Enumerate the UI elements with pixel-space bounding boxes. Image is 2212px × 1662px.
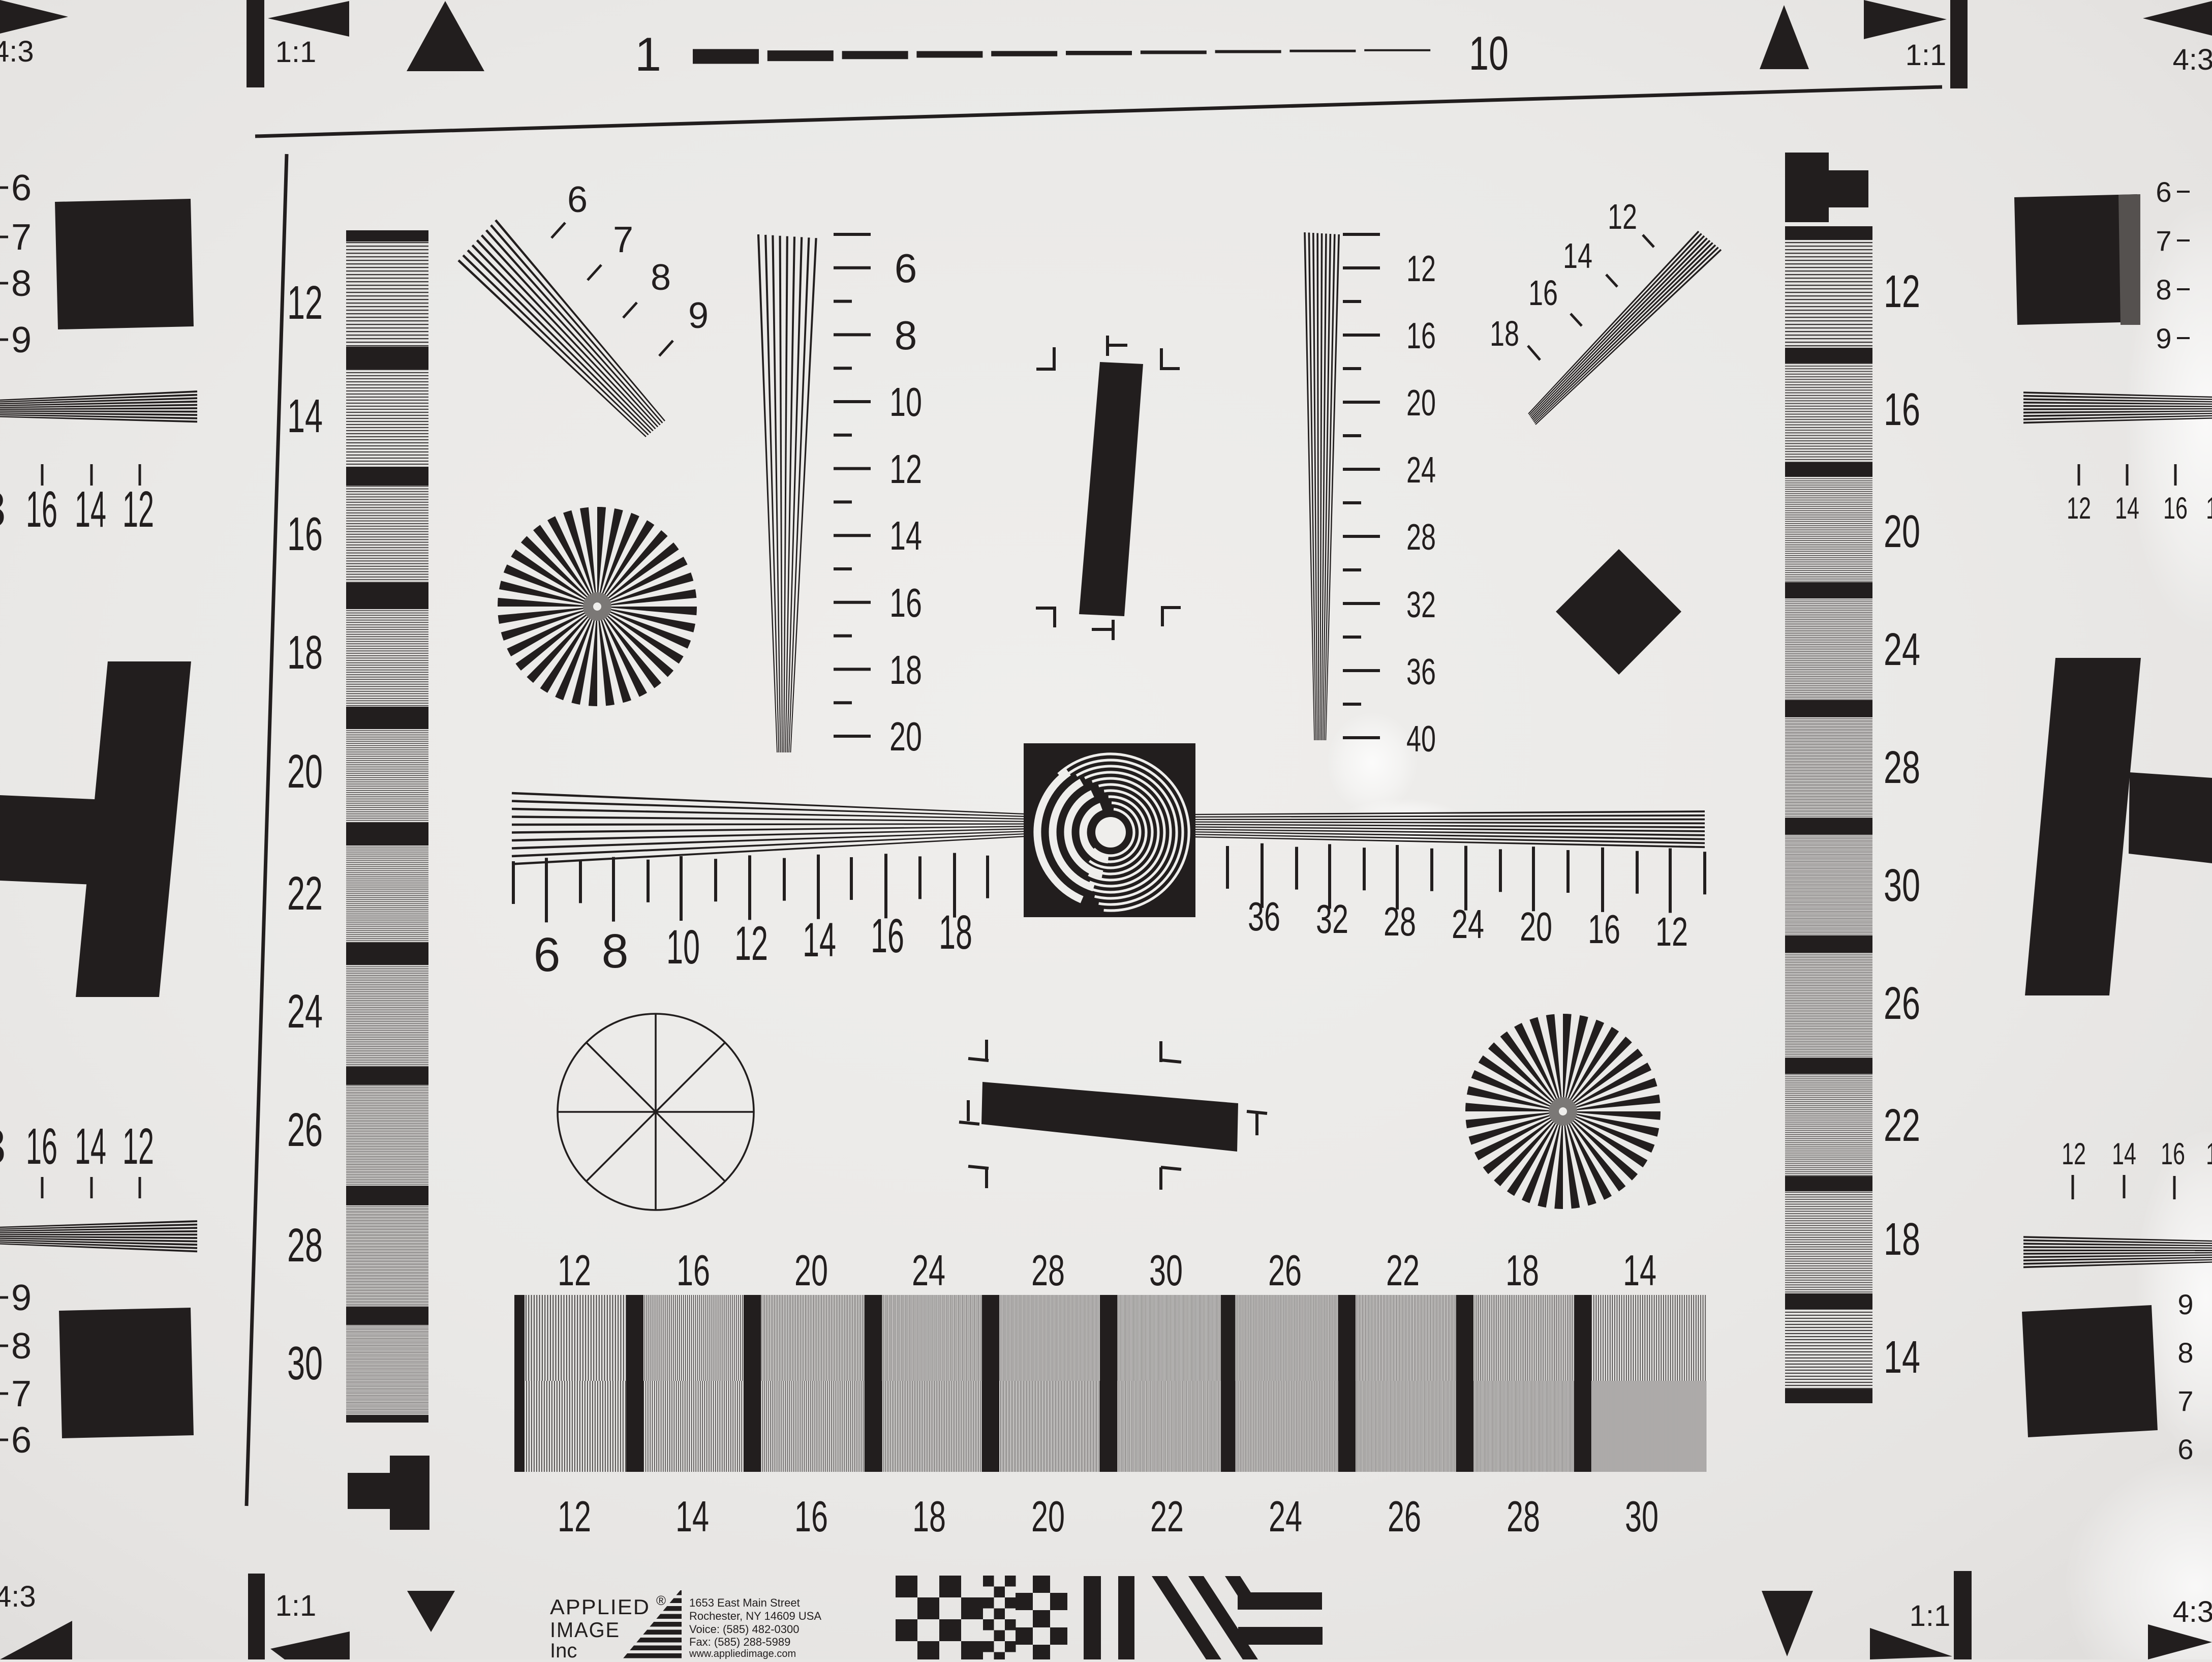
svg-text:32: 32	[1316, 896, 1348, 942]
svg-text:1:1: 1:1	[1906, 39, 1947, 72]
svg-text:6: 6	[895, 246, 917, 291]
svg-text:9: 9	[688, 295, 709, 336]
svg-text:1:1: 1:1	[275, 1589, 317, 1622]
svg-text:®: ®	[656, 1593, 666, 1608]
svg-text:28: 28	[1884, 742, 1920, 793]
svg-text:6: 6	[2156, 176, 2171, 208]
svg-text:26: 26	[1388, 1493, 1421, 1541]
svg-text:8: 8	[2156, 274, 2171, 306]
svg-text:12: 12	[2067, 491, 2091, 525]
svg-text:6: 6	[11, 168, 32, 208]
svg-text:16: 16	[26, 1118, 57, 1175]
svg-text:28: 28	[1031, 1247, 1065, 1295]
svg-text:20: 20	[1520, 904, 1552, 949]
svg-text:6: 6	[2177, 1433, 2193, 1465]
svg-text:26: 26	[287, 1103, 323, 1156]
svg-text:14: 14	[1563, 236, 1592, 276]
svg-text:32: 32	[1406, 585, 1436, 625]
svg-text:9: 9	[2177, 1288, 2193, 1320]
svg-text:16: 16	[2161, 1137, 2185, 1171]
svg-text:10: 10	[666, 920, 700, 974]
svg-text:9: 9	[11, 1278, 32, 1318]
svg-text:7: 7	[11, 1374, 32, 1414]
svg-text:22: 22	[1386, 1247, 1420, 1295]
svg-text:7: 7	[11, 217, 32, 258]
svg-text:14: 14	[889, 513, 922, 558]
svg-text:24: 24	[1269, 1493, 1302, 1541]
svg-text:14: 14	[1623, 1247, 1656, 1295]
svg-text:1653 East Main Street: 1653 East Main Street	[689, 1596, 800, 1609]
svg-text:24: 24	[912, 1247, 945, 1295]
svg-text:12: 12	[734, 917, 768, 971]
svg-text:12: 12	[1655, 909, 1688, 954]
svg-text:28: 28	[1507, 1493, 1540, 1541]
svg-text:16: 16	[1588, 906, 1620, 952]
svg-text:7: 7	[613, 220, 633, 260]
svg-text:Inc: Inc	[550, 1640, 577, 1659]
svg-text:6: 6	[567, 179, 588, 220]
svg-text:16: 16	[677, 1247, 710, 1295]
svg-text:18: 18	[1490, 314, 1519, 353]
svg-text:14: 14	[2112, 1137, 2136, 1171]
svg-text:6: 6	[534, 928, 561, 982]
svg-text:Voice: (585) 482-0300: Voice: (585) 482-0300	[689, 1623, 800, 1636]
svg-text:9: 9	[11, 320, 32, 360]
svg-text:18: 18	[1506, 1247, 1539, 1295]
svg-text:30: 30	[287, 1337, 323, 1389]
svg-text:12: 12	[558, 1493, 591, 1541]
svg-text:30: 30	[1625, 1493, 1658, 1541]
svg-text:4:3: 4:3	[0, 35, 34, 68]
svg-text:1: 1	[635, 27, 661, 81]
svg-text:14: 14	[75, 481, 106, 538]
svg-text:14: 14	[803, 913, 836, 967]
svg-text:16: 16	[871, 909, 904, 963]
svg-text:8: 8	[651, 257, 671, 298]
svg-text:36: 36	[1248, 894, 1280, 939]
svg-text:16: 16	[2163, 491, 2188, 525]
svg-text:1:1: 1:1	[1910, 1599, 1951, 1633]
svg-text:Fax: (585) 288-5989: Fax: (585) 288-5989	[689, 1636, 790, 1648]
svg-text:7: 7	[2177, 1385, 2193, 1417]
svg-text:Rochester, NY 14609 USA: Rochester, NY 14609 USA	[689, 1610, 821, 1622]
svg-text:4:3: 4:3	[0, 1580, 36, 1613]
svg-text:6: 6	[11, 1420, 32, 1461]
svg-text:9: 9	[2156, 322, 2171, 354]
svg-text:22: 22	[1884, 1100, 1920, 1151]
svg-text:20: 20	[889, 714, 922, 759]
svg-text:16: 16	[26, 481, 57, 538]
svg-text:7: 7	[2156, 225, 2171, 257]
svg-text:18: 18	[1884, 1214, 1920, 1265]
svg-text:30: 30	[1149, 1247, 1183, 1295]
svg-text:12: 12	[287, 276, 323, 329]
svg-text:24: 24	[1884, 624, 1920, 675]
svg-text:24: 24	[287, 985, 323, 1038]
svg-text:12: 12	[2062, 1137, 2086, 1171]
svg-text:8: 8	[0, 1118, 6, 1175]
svg-text:8: 8	[11, 1326, 32, 1367]
svg-text:4:3: 4:3	[2173, 1595, 2212, 1628]
svg-text:18: 18	[287, 626, 323, 679]
svg-text:22: 22	[287, 867, 323, 920]
svg-text:10: 10	[1469, 26, 1509, 80]
svg-text:20: 20	[1406, 383, 1436, 424]
svg-text:12: 12	[1608, 197, 1637, 236]
svg-text:28: 28	[1384, 899, 1416, 944]
svg-text:28: 28	[287, 1219, 323, 1272]
svg-text:16: 16	[889, 580, 922, 625]
svg-text:16: 16	[1884, 384, 1920, 435]
svg-text:40: 40	[1406, 719, 1436, 760]
svg-text:20: 20	[1031, 1493, 1065, 1541]
svg-text:8: 8	[602, 924, 629, 978]
svg-text:14: 14	[287, 389, 323, 442]
svg-text:18: 18	[889, 647, 922, 692]
svg-text:16: 16	[287, 507, 323, 560]
svg-text:12: 12	[1406, 249, 1436, 289]
svg-text:14: 14	[75, 1118, 106, 1175]
svg-text:12: 12	[1884, 266, 1920, 317]
svg-text:8: 8	[11, 263, 32, 304]
svg-text:12: 12	[889, 446, 922, 492]
svg-text:12: 12	[558, 1247, 591, 1295]
svg-text:12: 12	[122, 1118, 154, 1175]
svg-text:14: 14	[1884, 1332, 1920, 1383]
svg-text:16: 16	[1528, 273, 1558, 313]
svg-text:14: 14	[2115, 491, 2139, 525]
svg-text:8: 8	[2177, 1337, 2193, 1369]
svg-text:www.appliedimage.com: www.appliedimage.com	[689, 1648, 796, 1659]
svg-text:14: 14	[675, 1493, 709, 1541]
svg-text:28: 28	[1406, 517, 1436, 558]
svg-text:APPLIED: APPLIED	[550, 1595, 650, 1619]
svg-text:4:3: 4:3	[2173, 43, 2212, 76]
svg-text:12: 12	[122, 481, 154, 538]
svg-text:18: 18	[2206, 491, 2212, 525]
svg-text:20: 20	[287, 745, 323, 798]
svg-text:10: 10	[889, 379, 922, 425]
svg-text:24: 24	[1406, 450, 1436, 491]
svg-text:36: 36	[1406, 652, 1436, 692]
svg-text:18: 18	[912, 1493, 946, 1541]
svg-text:16: 16	[794, 1493, 828, 1541]
svg-text:16: 16	[1406, 316, 1436, 356]
svg-text:18: 18	[2206, 1137, 2212, 1171]
svg-text:8: 8	[0, 481, 6, 538]
svg-text:IMAGE: IMAGE	[550, 1618, 620, 1642]
svg-text:22: 22	[1150, 1493, 1184, 1541]
svg-text:20: 20	[794, 1247, 828, 1295]
svg-text:1:1: 1:1	[275, 36, 317, 69]
svg-text:26: 26	[1884, 978, 1920, 1029]
svg-text:30: 30	[1884, 860, 1920, 911]
svg-text:20: 20	[1884, 506, 1920, 557]
svg-text:8: 8	[895, 313, 917, 358]
svg-text:24: 24	[1452, 901, 1484, 947]
svg-text:18: 18	[939, 905, 972, 959]
svg-text:26: 26	[1268, 1247, 1302, 1295]
